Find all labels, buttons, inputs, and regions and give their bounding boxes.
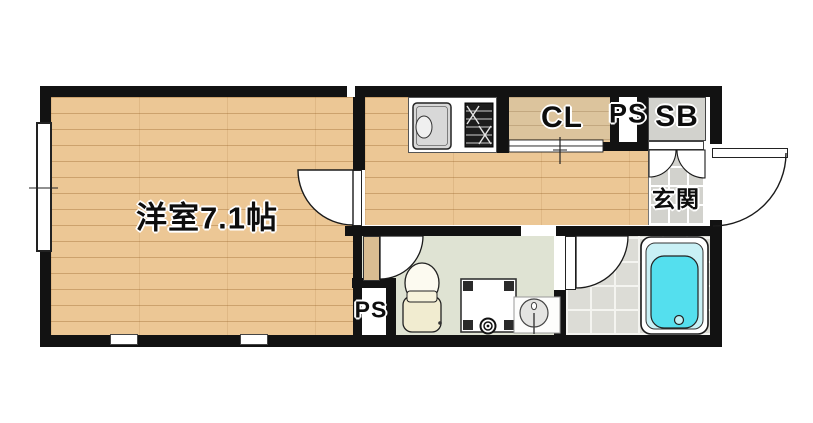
bathtub-drain bbox=[675, 316, 684, 325]
kitchen-stove bbox=[465, 103, 493, 147]
washing-machine-pan bbox=[461, 279, 516, 334]
pipe-space-upper-label: PS bbox=[609, 99, 647, 130]
bathroom-door-arc bbox=[576, 236, 628, 288]
main-room-label: 洋室7.1帖 bbox=[136, 193, 278, 238]
shoebox-door-arc-right bbox=[677, 150, 705, 178]
closet-label: CL bbox=[541, 101, 583, 135]
closet-sliding-door bbox=[509, 137, 603, 164]
shoebox-door-arc-left bbox=[649, 150, 676, 177]
wash-basin bbox=[514, 297, 560, 334]
toilet bbox=[403, 263, 442, 332]
bathtub bbox=[641, 237, 708, 334]
shoe-box-label: SB bbox=[655, 100, 699, 134]
floor-plan: 洋室7.1帖 CL PS SB 玄関 PS bbox=[0, 0, 813, 423]
entry-door-arc bbox=[713, 153, 786, 226]
entrance-label: 玄関 bbox=[652, 180, 700, 214]
pipe-space-lower-label: PS bbox=[355, 297, 388, 324]
main-room-door-arc bbox=[298, 170, 353, 225]
kitchen-sink bbox=[413, 103, 451, 149]
